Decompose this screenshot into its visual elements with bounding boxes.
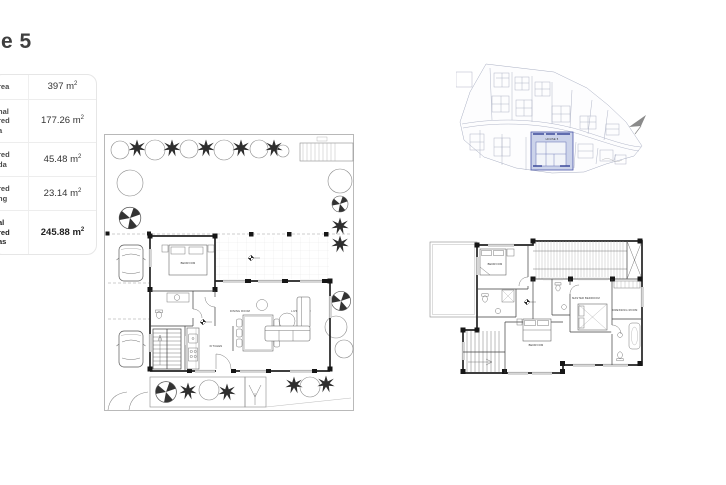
ff-bedroom-bottom: BEDROOM [517, 319, 551, 347]
planting-bottom [108, 376, 351, 411]
car-1 [117, 245, 146, 281]
kitchen: KITCHEN [187, 328, 222, 369]
row-value: 23.14 m2 [29, 182, 96, 205]
floor-plan-sheet: e 5 rea 397 m2 nal red a 177.26 m2 red d… [0, 0, 726, 485]
car-2 [117, 331, 146, 367]
site-highlight-label: HOUSE 5 [546, 137, 559, 141]
staircase [153, 329, 181, 369]
row-label: rea [0, 75, 29, 99]
page-title: e 5 [1, 30, 32, 54]
hedge-top [111, 140, 289, 161]
ff-wc [555, 283, 566, 310]
parking-area [108, 245, 149, 367]
ff-master-bedroom: MASTER BEDROOM [572, 296, 607, 330]
table-row-covered-veranda: red da 45.48 m2 [0, 142, 96, 176]
ff-dressing-room: DRESSING ROOM [613, 281, 640, 312]
site-plan: HOUSE 5 [456, 60, 656, 178]
ff-bathroom-right [617, 323, 640, 361]
row-value: 397 m2 [29, 75, 96, 98]
row-value: 45.48 m2 [29, 148, 96, 171]
ff-bathroom-top [482, 290, 514, 314]
first-floor-plan: BEDROOM MASTER BEDROOM DRESSING ROOM [428, 227, 648, 377]
row-label: al red as [0, 211, 29, 254]
gf-label-dining: DINING ROOM [230, 309, 250, 313]
gf-label-bedroom: BEDROOM [181, 261, 196, 265]
gf-bedroom: BEDROOM [162, 245, 214, 275]
roof-terrace [430, 242, 477, 317]
garden-trees-left [116, 170, 143, 232]
area-summary-table: rea 397 m2 nal red a 177.26 m2 red da 45… [0, 74, 97, 255]
row-label: nal red a [0, 100, 29, 143]
ff-label-bedroom-top: BEDROOM [488, 262, 503, 266]
ff-label-bedroom-bottom: BEDROOM [529, 343, 544, 347]
ff-label-master: MASTER BEDROOM [572, 296, 600, 300]
pergola-roof [533, 241, 642, 281]
ff-staircase [463, 331, 505, 372]
table-row-total-covered: al red as 245.88 m2 [0, 210, 96, 254]
veranda-paving [216, 237, 329, 279]
row-label: red ng [0, 177, 29, 210]
external-stair [300, 137, 353, 161]
table-row-covered-parking: red ng 23.14 m2 [0, 176, 96, 210]
site-highlight-plot: HOUSE 5 [531, 132, 573, 170]
row-value: 177.26 m2 [29, 109, 96, 132]
ff-label-dressing: DRESSING ROOM [613, 308, 638, 312]
row-value: 245.88 m2 [29, 221, 96, 244]
ground-floor-plan: KITCHEN BEDROOM DINING ROOM [103, 131, 355, 412]
row-label: red da [0, 143, 29, 176]
ff-bedroom-top: BEDROOM [480, 249, 514, 275]
table-row-internal-covered: nal red a 177.26 m2 [0, 99, 96, 143]
table-row-plot-area: rea 397 m2 [0, 75, 96, 99]
gf-label-kitchen: KITCHEN [210, 344, 223, 348]
gf-bathroom [156, 293, 190, 318]
